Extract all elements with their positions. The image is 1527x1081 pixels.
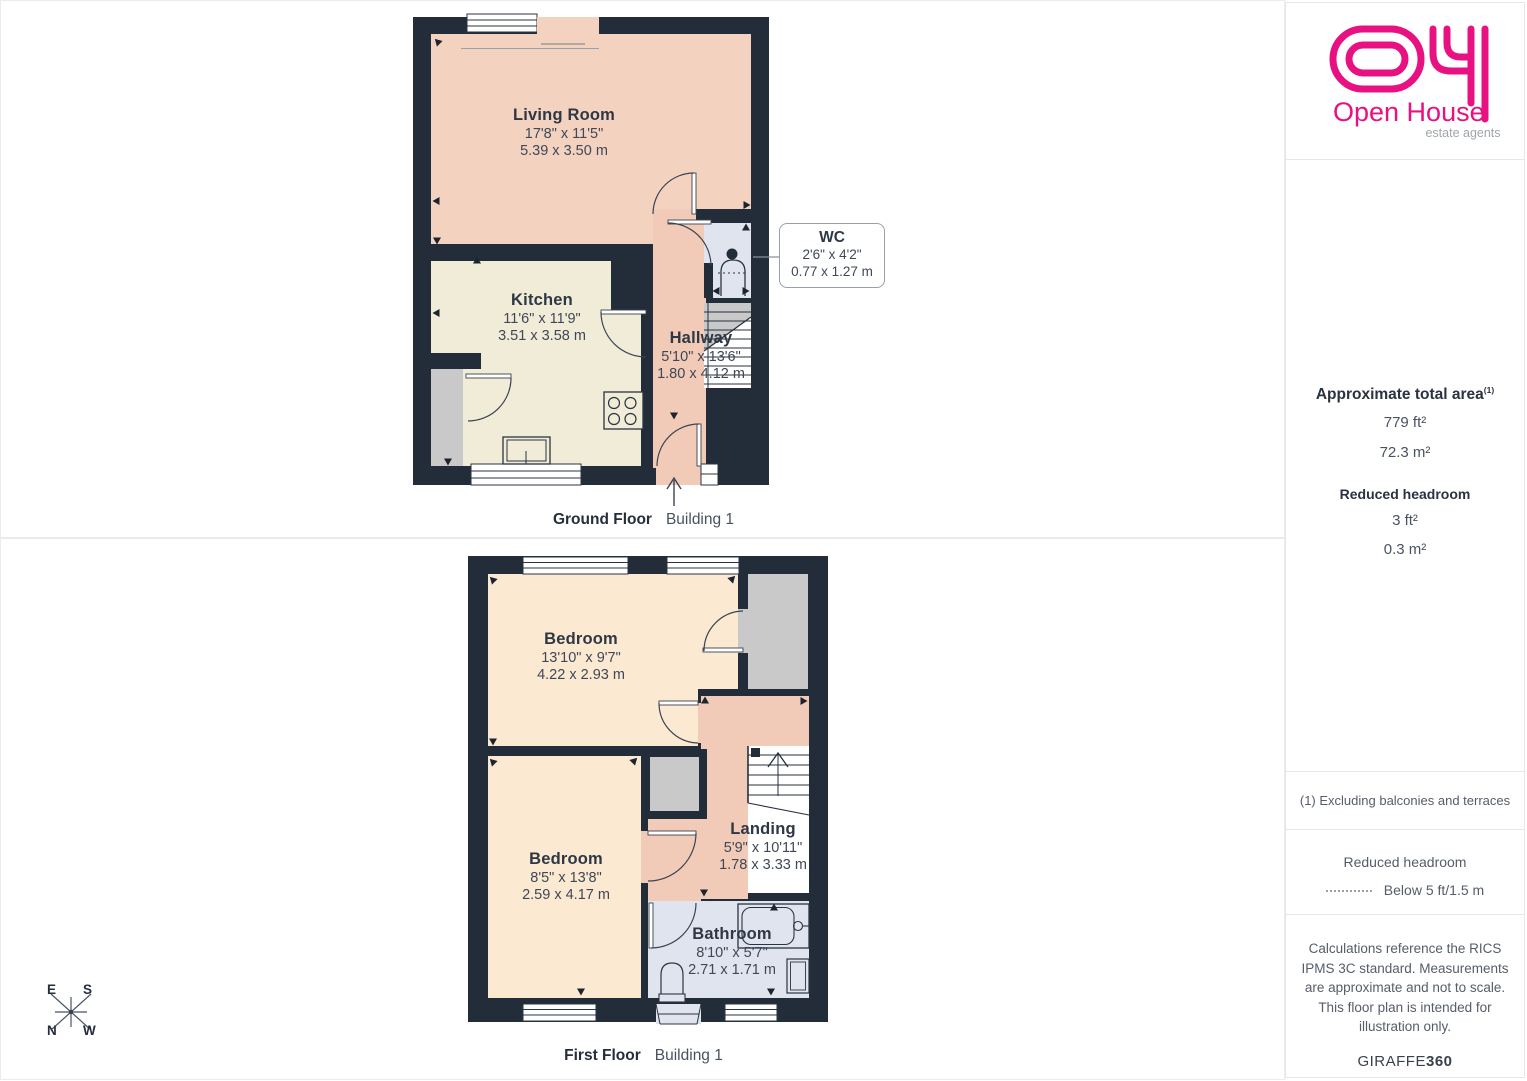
reduced-headroom-title: Reduced headroom xyxy=(1286,486,1524,502)
legend-label: Below 5 ft/1.5 m xyxy=(1384,882,1484,898)
first-floor-panel: Bedroom 13'10" x 9'7" 4.22 x 2.93 m Bedr… xyxy=(1,541,1286,1081)
footnote-box: (1) Excluding balconies and terraces xyxy=(1285,771,1525,830)
legend-title: Reduced headroom xyxy=(1286,854,1524,870)
reduced-headroom-ft: 3 ft² xyxy=(1286,510,1524,532)
compass-south: S xyxy=(83,982,92,997)
compass-rose: E S N W xyxy=(37,985,113,1045)
reduced-headroom-m: 0.3 m² xyxy=(1286,539,1524,561)
dotted-line-swatch xyxy=(1326,890,1372,892)
room-label-bedroom-2: Bedroom 8'5" x 13'8" 2.59 x 4.17 m xyxy=(522,850,610,905)
room-label-kitchen: Kitchen 11'6" x 11'9" 3.51 x 3.58 m xyxy=(498,291,586,346)
room-label-bathroom: Bathroom 8'10" x 5'7" 2.71 x 1.71 m xyxy=(688,925,776,980)
agency-logo-box: Open House estate agents xyxy=(1285,2,1525,160)
storage-cupboard xyxy=(738,574,808,689)
footnote-marker: (1) xyxy=(1484,385,1494,395)
room-label-living: Living Room 17'8" x 11'5" 5.39 x 3.50 m xyxy=(513,106,615,161)
disclaimer-box: Calculations reference the RICS IPMS 3C … xyxy=(1285,914,1525,1078)
room-label-landing: Landing 5'9" x 10'11" 1.78 x 3.33 m xyxy=(719,820,807,875)
compass-east: E xyxy=(47,982,56,997)
legend-box: Reduced headroom Below 5 ft/1.5 m xyxy=(1285,829,1525,915)
legend-row: Below 5 ft/1.5 m xyxy=(1286,882,1524,898)
area-summary-box: Approximate total area(1) 779 ft² 72.3 m… xyxy=(1285,159,1525,772)
footnote-text: (1) Excluding balconies and terraces xyxy=(1300,793,1510,808)
first-floor-plan xyxy=(1,541,1286,1081)
ground-floor-caption: Ground FloorBuilding 1 xyxy=(1,511,1286,529)
giraffe360-bold: 360 xyxy=(1426,1053,1453,1070)
compass-north: N xyxy=(47,1023,57,1038)
giraffe360-normal: GIRAFFE xyxy=(1357,1053,1426,1070)
total-area-m: 72.3 m² xyxy=(1286,442,1524,464)
disclaimer-text: Calculations reference the RICS IPMS 3C … xyxy=(1300,939,1510,1037)
wc-callout: WC 2'6" x 4'2" 0.77 x 1.27 m xyxy=(779,223,885,288)
total-area-ft: 779 ft² xyxy=(1286,412,1524,434)
room-label-hallway: Hallway 5'10" x 13'6" 1.80 x 4.12 m xyxy=(657,329,745,384)
first-floor-caption: First FloorBuilding 1 xyxy=(1,1047,1286,1065)
open-house-logo-graphic: Open House estate agents xyxy=(1305,23,1505,141)
logo-wordmark: Open House xyxy=(1333,97,1485,127)
ground-floor-plan xyxy=(1,1,1286,539)
bathroom-bay-window xyxy=(656,1004,701,1024)
kitchen-stove xyxy=(604,392,643,429)
landing-closet xyxy=(642,749,707,819)
total-area-title: Approximate total area(1) xyxy=(1286,385,1524,404)
floorplan-canvas: Living Room 17'8" x 11'5" 5.39 x 3.50 m … xyxy=(0,0,1285,1080)
logo-tagline: estate agents xyxy=(1425,126,1500,140)
info-sidebar: Open House estate agents Approximate tot… xyxy=(1285,0,1527,1080)
open-house-logo: Open House estate agents xyxy=(1286,3,1524,146)
room-label-bedroom-1: Bedroom 13'10" x 9'7" 4.22 x 2.93 m xyxy=(537,630,625,685)
giraffe360-brand: GIRAFFE360 xyxy=(1286,1053,1524,1070)
ground-floor-panel: Living Room 17'8" x 11'5" 5.39 x 3.50 m … xyxy=(1,1,1286,539)
compass-west: W xyxy=(83,1023,96,1038)
